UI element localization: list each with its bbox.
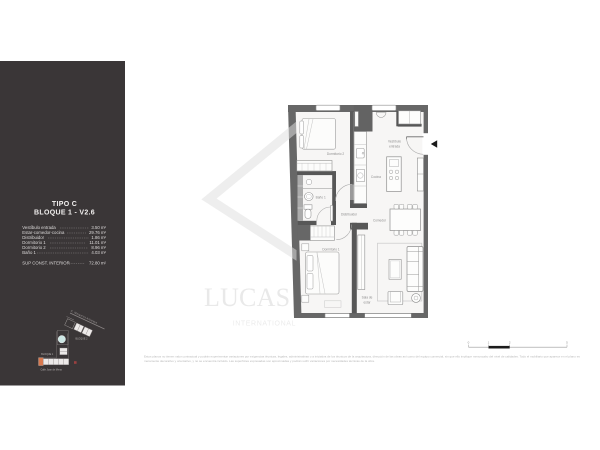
svg-text:Baño 1: Baño 1	[316, 195, 326, 199]
svg-text:Baño 1: Baño 1	[22, 250, 36, 255]
svg-text:Calle Juan de Mena: Calle Juan de Mena	[41, 369, 63, 372]
svg-text:Distribuidor: Distribuidor	[341, 213, 358, 217]
svg-text:INTERNATIONAL PROPERTIES: INTERNATIONAL PROPERTIES	[233, 321, 350, 328]
svg-text:Estos planos no tienen valor c: Estos planos no tienen valor contractual…	[144, 355, 580, 359]
svg-text:Estar-comedor-cocina: Estar-comedor-cocina	[22, 230, 65, 235]
svg-text:Sala de: Sala de	[362, 295, 373, 299]
svg-text:Cocina: Cocina	[371, 175, 381, 179]
svg-text:72.80 m²: 72.80 m²	[89, 260, 107, 265]
svg-text:BLOQUE 1 - V2.6: BLOQUE 1 - V2.6	[34, 210, 95, 217]
svg-text:Distribuidor: Distribuidor	[22, 235, 44, 240]
svg-text:Vestíbulo: Vestíbulo	[388, 139, 401, 143]
svg-text:Dormitorio 2: Dormitorio 2	[22, 245, 46, 250]
svg-text:Dormitorio 1: Dormitorio 1	[22, 240, 46, 245]
svg-text:11.01 m²: 11.01 m²	[89, 240, 106, 245]
svg-text:BLOQUE 1: BLOQUE 1	[41, 353, 54, 356]
svg-text:entrada: entrada	[389, 144, 400, 148]
svg-text:8.96 m²: 8.96 m²	[91, 245, 106, 250]
svg-text:SUP CONST. INTERIOR: SUP CONST. INTERIOR	[22, 260, 69, 265]
svg-text:BLOQUE 2: BLOQUE 2	[76, 338, 89, 341]
svg-text:TIPO C: TIPO C	[52, 201, 77, 208]
svg-text:1.86 m²: 1.86 m²	[91, 235, 106, 240]
svg-text:4.03 m²: 4.03 m²	[91, 250, 106, 255]
svg-text:meramente decorativo y orienta: meramente decorativo y orientativo, y no…	[144, 359, 375, 363]
svg-text:Comedor: Comedor	[373, 218, 387, 222]
svg-text:estar: estar	[363, 300, 371, 304]
svg-text:3.50 m²: 3.50 m²	[91, 225, 106, 230]
svg-text:29.76 m²: 29.76 m²	[89, 230, 107, 235]
svg-text:Vestíbulo entrada: Vestíbulo entrada	[22, 225, 56, 230]
svg-text:LUCAS FOX: LUCAS FOX	[204, 283, 350, 312]
